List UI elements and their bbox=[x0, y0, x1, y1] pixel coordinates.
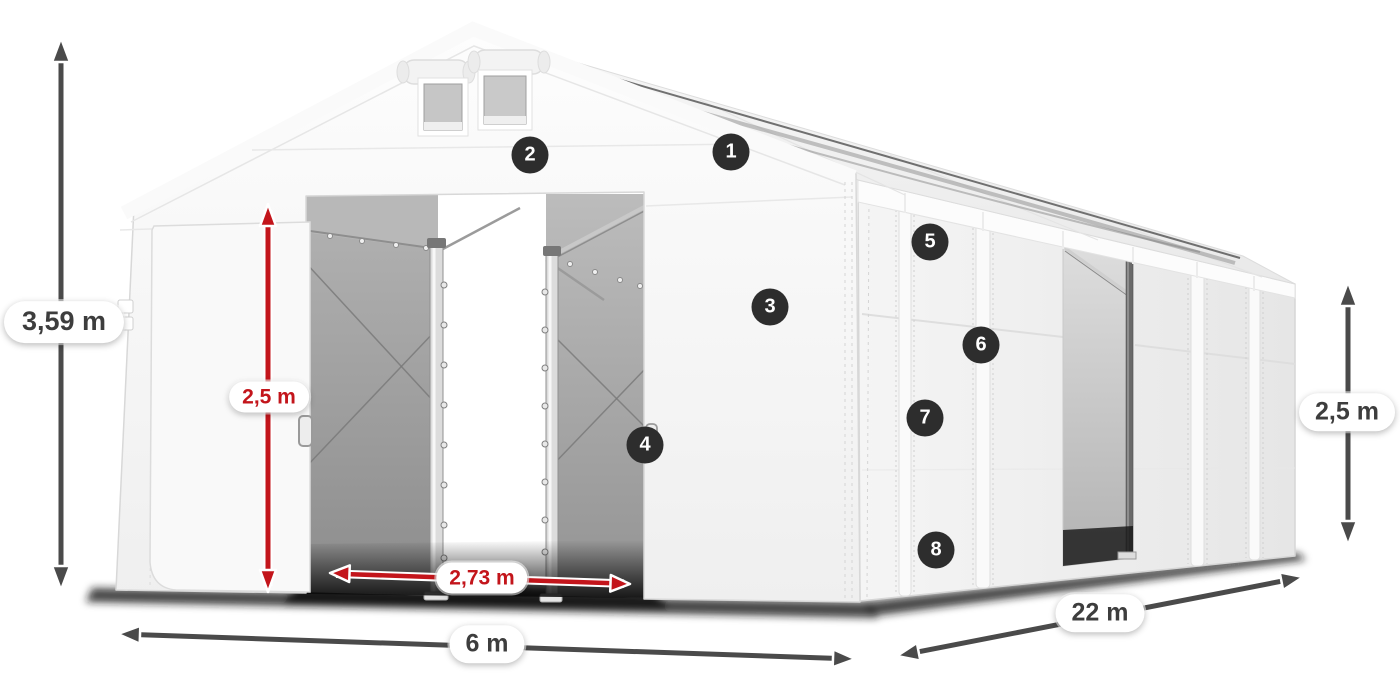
part-badge-5: 5 bbox=[912, 224, 949, 261]
part-badge-6: 6 bbox=[963, 327, 1000, 364]
side-door-opening bbox=[1063, 240, 1136, 566]
part-badge-4: 4 bbox=[627, 427, 664, 464]
door-handle-left bbox=[299, 416, 312, 446]
part-badge-8: 8 bbox=[918, 532, 955, 569]
dimension-entrance-height: 2,5 m bbox=[229, 381, 309, 412]
part-badge-1: 1 bbox=[713, 134, 750, 171]
dimension-width: 6 m bbox=[449, 625, 524, 663]
part-badge-2: 2 bbox=[512, 137, 549, 174]
tent-interior bbox=[303, 194, 650, 602]
dimension-length: 22 m bbox=[1056, 594, 1145, 632]
tent-illustration bbox=[0, 0, 1400, 700]
dimension-total-height: 3,59 m bbox=[4, 301, 124, 343]
dimension-side-height: 2,5 m bbox=[1299, 393, 1395, 431]
part-badge-3: 3 bbox=[752, 289, 789, 326]
dimension-entrance-width: 2,73 m bbox=[436, 562, 527, 593]
tent-dimensions-diagram: 3,59 m 2,5 m 2,73 m 6 m 22 m 2,5 m 1 2 3… bbox=[0, 0, 1400, 700]
part-badge-7: 7 bbox=[907, 400, 944, 437]
inner-door-pole-left bbox=[424, 208, 520, 600]
